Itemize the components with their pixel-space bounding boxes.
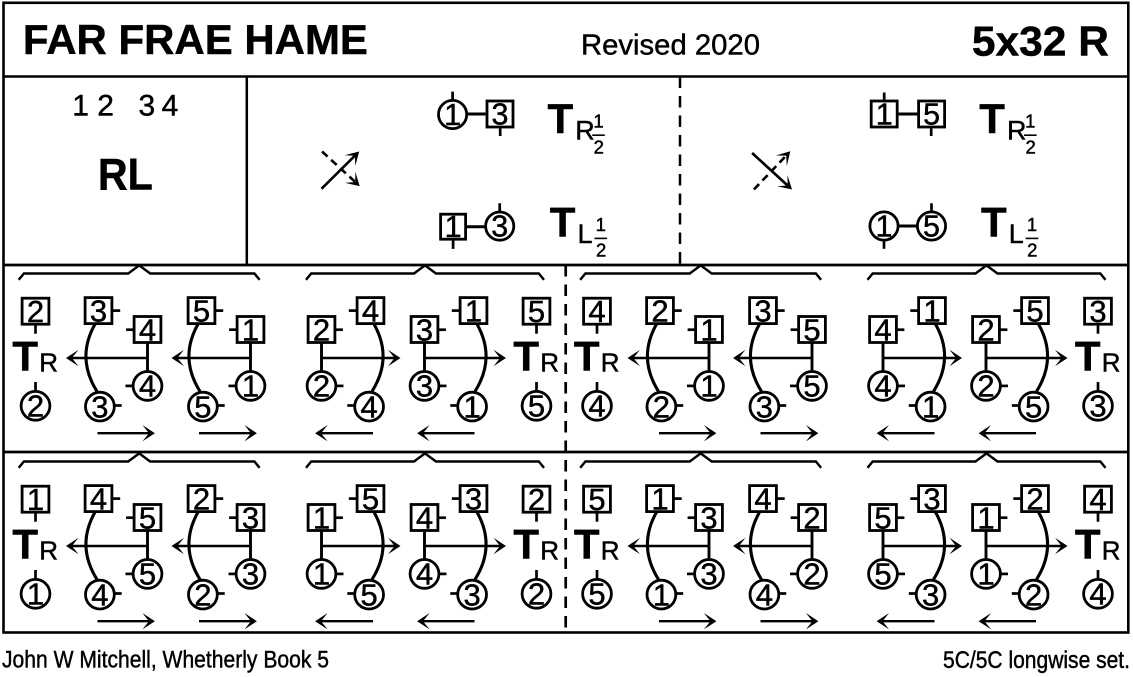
svg-text:1: 1 [593, 111, 603, 132]
svg-text:4: 4 [1089, 577, 1106, 612]
svg-text:1: 1 [653, 577, 670, 612]
svg-text:3: 3 [416, 313, 433, 348]
svg-text:2: 2 [977, 369, 994, 404]
svg-text:1: 1 [27, 577, 44, 612]
svg-text:R: R [39, 348, 58, 378]
svg-text:5: 5 [1025, 389, 1042, 424]
svg-text:2: 2 [97, 90, 114, 123]
svg-text:5: 5 [528, 389, 545, 424]
svg-text:3: 3 [492, 97, 509, 131]
svg-text:1: 1 [444, 98, 461, 132]
svg-text:T: T [574, 333, 600, 380]
svg-text:T: T [1075, 333, 1101, 380]
svg-text:Revised 2020: Revised 2020 [581, 30, 760, 62]
svg-text:1: 1 [1025, 111, 1035, 132]
svg-text:5C/5C longwise set.: 5C/5C longwise set. [943, 647, 1130, 674]
svg-text:2: 2 [594, 136, 604, 157]
svg-text:3: 3 [416, 369, 433, 404]
svg-text:2: 2 [193, 482, 210, 517]
svg-text:T: T [513, 333, 539, 380]
svg-text:1: 1 [923, 294, 940, 329]
svg-text:2: 2 [27, 294, 44, 329]
svg-text:4: 4 [874, 369, 891, 404]
svg-text:5: 5 [1026, 294, 1043, 329]
svg-text:R: R [540, 536, 559, 566]
svg-text:3: 3 [756, 389, 773, 424]
svg-text:4: 4 [362, 294, 379, 329]
svg-text:1: 1 [1027, 214, 1037, 235]
svg-text:4: 4 [588, 294, 605, 329]
svg-text:T: T [12, 333, 38, 380]
svg-text:3: 3 [700, 501, 717, 536]
svg-text:5: 5 [803, 369, 820, 404]
svg-text:4: 4 [162, 90, 179, 123]
svg-text:L: L [1009, 219, 1024, 249]
svg-text:RL: RL [98, 151, 153, 200]
svg-text:2: 2 [528, 577, 545, 612]
svg-text:2: 2 [1025, 577, 1042, 612]
svg-text:4: 4 [416, 557, 433, 592]
svg-text:1: 1 [313, 557, 330, 592]
svg-text:FAR FRAE HAME: FAR FRAE HAME [23, 16, 368, 63]
svg-text:2: 2 [803, 557, 820, 592]
svg-text:5: 5 [194, 389, 211, 424]
svg-text:1: 1 [27, 482, 44, 517]
svg-text:5: 5 [528, 294, 545, 329]
svg-text:4: 4 [754, 482, 771, 517]
svg-text:5: 5 [923, 97, 940, 131]
svg-text:5: 5 [193, 294, 210, 329]
svg-text:1: 1 [876, 97, 893, 131]
svg-text:4: 4 [360, 389, 377, 424]
svg-text:5: 5 [588, 482, 605, 517]
svg-text:T: T [979, 95, 1005, 142]
svg-text:3: 3 [90, 294, 107, 329]
svg-text:R: R [1102, 348, 1121, 378]
svg-text:2: 2 [596, 240, 606, 261]
svg-text:5: 5 [588, 577, 605, 612]
svg-text:3: 3 [923, 482, 940, 517]
svg-text:2: 2 [653, 389, 670, 424]
svg-text:5: 5 [923, 209, 940, 243]
svg-text:1: 1 [72, 90, 89, 123]
svg-text:T: T [981, 198, 1007, 245]
svg-text:3: 3 [491, 210, 508, 244]
svg-text:T: T [12, 521, 38, 568]
svg-text:5: 5 [362, 482, 379, 517]
svg-text:5: 5 [874, 557, 891, 592]
svg-text:3: 3 [700, 557, 717, 592]
svg-text:4: 4 [588, 389, 605, 424]
svg-text:1: 1 [465, 294, 482, 329]
svg-text:3: 3 [463, 577, 480, 612]
svg-text:5: 5 [139, 557, 156, 592]
svg-text:1: 1 [313, 501, 330, 536]
svg-text:2: 2 [27, 389, 44, 424]
svg-text:1: 1 [977, 557, 994, 592]
svg-text:R: R [1102, 536, 1121, 566]
svg-text:2: 2 [313, 369, 330, 404]
svg-text:1: 1 [977, 501, 994, 536]
svg-text:3: 3 [139, 90, 156, 123]
svg-text:5x32 R: 5x32 R [972, 17, 1109, 64]
svg-text:3: 3 [1089, 294, 1106, 329]
svg-text:2: 2 [1025, 136, 1035, 157]
svg-text:3: 3 [754, 294, 771, 329]
svg-text:1: 1 [463, 389, 480, 424]
svg-text:1: 1 [651, 482, 668, 517]
svg-text:4: 4 [756, 577, 773, 612]
svg-text:R: R [39, 536, 58, 566]
svg-text:3: 3 [1089, 389, 1106, 424]
svg-text:5: 5 [874, 501, 891, 536]
svg-text:2: 2 [194, 577, 211, 612]
svg-text:3: 3 [242, 501, 259, 536]
svg-text:2: 2 [1026, 482, 1043, 517]
svg-text:2: 2 [651, 294, 668, 329]
svg-text:R: R [1007, 116, 1027, 146]
svg-text:1: 1 [242, 313, 259, 348]
svg-text:1: 1 [876, 209, 893, 243]
svg-text:4: 4 [90, 482, 107, 517]
svg-text:T: T [1075, 521, 1101, 568]
svg-text:T: T [513, 521, 539, 568]
svg-text:T: T [548, 95, 574, 142]
svg-text:5: 5 [139, 501, 156, 536]
svg-text:1: 1 [445, 210, 462, 244]
svg-text:4: 4 [1089, 482, 1106, 517]
svg-text:5: 5 [360, 577, 377, 612]
svg-text:John W Mitchell, Whetherly Boo: John W Mitchell, Whetherly Book 5 [2, 647, 329, 674]
svg-text:T: T [574, 521, 600, 568]
svg-text:3: 3 [922, 577, 939, 612]
svg-text:2: 2 [977, 313, 994, 348]
svg-text:2: 2 [313, 313, 330, 348]
svg-text:4: 4 [874, 313, 891, 348]
svg-text:R: R [540, 348, 559, 378]
svg-text:4: 4 [91, 577, 108, 612]
svg-text:T: T [550, 198, 576, 245]
svg-text:1: 1 [922, 389, 939, 424]
svg-text:R: R [575, 116, 595, 146]
svg-text:1: 1 [242, 369, 259, 404]
svg-text:1: 1 [596, 214, 606, 235]
svg-text:3: 3 [91, 389, 108, 424]
svg-text:4: 4 [416, 501, 433, 536]
svg-text:2: 2 [528, 482, 545, 517]
svg-text:3: 3 [465, 482, 482, 517]
svg-text:5: 5 [803, 313, 820, 348]
svg-text:R: R [601, 536, 620, 566]
svg-text:R: R [601, 348, 620, 378]
svg-text:1: 1 [700, 369, 717, 404]
svg-text:2: 2 [1027, 240, 1037, 261]
svg-text:4: 4 [139, 369, 156, 404]
svg-text:1: 1 [700, 313, 717, 348]
svg-text:L: L [578, 219, 593, 249]
svg-text:3: 3 [242, 557, 259, 592]
svg-text:2: 2 [803, 501, 820, 536]
svg-text:4: 4 [139, 313, 156, 348]
